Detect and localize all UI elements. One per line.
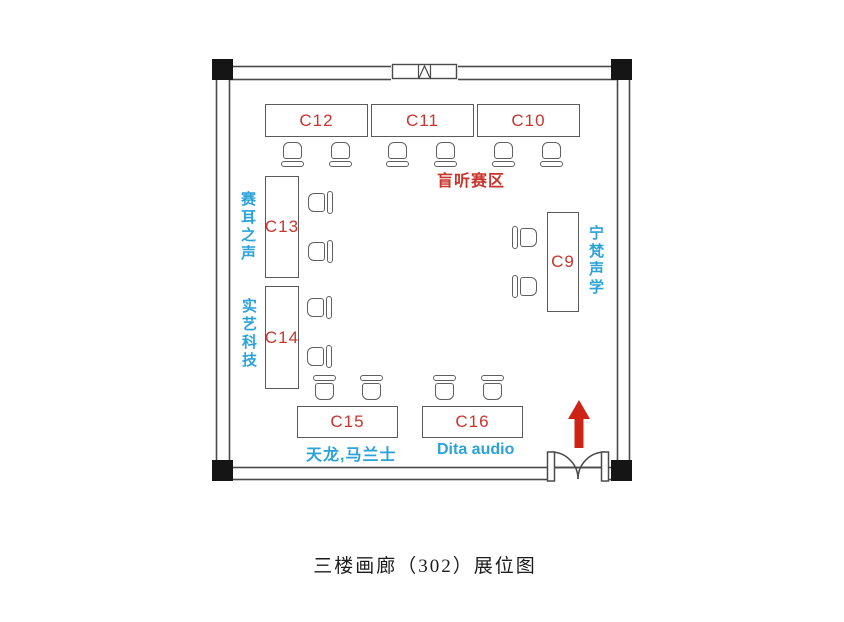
exhibitor-label-dita: Dita audio (437, 441, 514, 459)
chair-icon (308, 191, 334, 217)
chair-icon (313, 375, 339, 401)
chair-icon (433, 375, 459, 401)
corner-post (611, 59, 632, 80)
chair-icon (540, 142, 566, 168)
booth-c12: C12 (265, 104, 368, 137)
chair-icon (281, 142, 307, 168)
corner-post (212, 59, 233, 80)
booth-c11: C11 (371, 104, 474, 137)
chair-icon (360, 375, 386, 401)
booth-c9: C9 (547, 212, 579, 312)
booth-c13: C13 (265, 176, 299, 278)
exhibitor-label-saier: 赛耳之声 (238, 191, 256, 263)
exhibitor-label-shiyi: 实艺科技 (239, 298, 257, 370)
booth-c10: C10 (477, 104, 580, 137)
floor-plan: C12 C11 C10 C13 C14 C9 C15 C16 盲听赛区 赛耳之声… (0, 0, 844, 622)
zone-label-blind-listening: 盲听赛区 (437, 167, 505, 191)
chair-icon (492, 142, 518, 168)
chair-icon (434, 142, 460, 168)
chair-icon (308, 240, 334, 266)
chair-icon (512, 275, 538, 301)
chair-icon (307, 296, 333, 322)
corner-post (212, 460, 233, 481)
booth-c14: C14 (265, 286, 299, 389)
booth-c16: C16 (422, 406, 523, 438)
chair-icon (329, 142, 355, 168)
page-title: 三楼画廊（302）展位图 (215, 551, 635, 578)
entrance-arrow-icon (568, 400, 590, 448)
chair-icon (481, 375, 507, 401)
corner-post (611, 460, 632, 481)
window-icon (391, 62, 458, 81)
exhibitor-label-ningfan: 宁梵声学 (586, 225, 604, 297)
booth-c15: C15 (297, 406, 398, 438)
chair-icon (512, 226, 538, 252)
chair-icon (307, 345, 333, 371)
floor-plan-structure (0, 0, 844, 622)
chair-icon (386, 142, 412, 168)
exhibitor-label-tianlong: 天龙,马兰士 (306, 441, 396, 465)
